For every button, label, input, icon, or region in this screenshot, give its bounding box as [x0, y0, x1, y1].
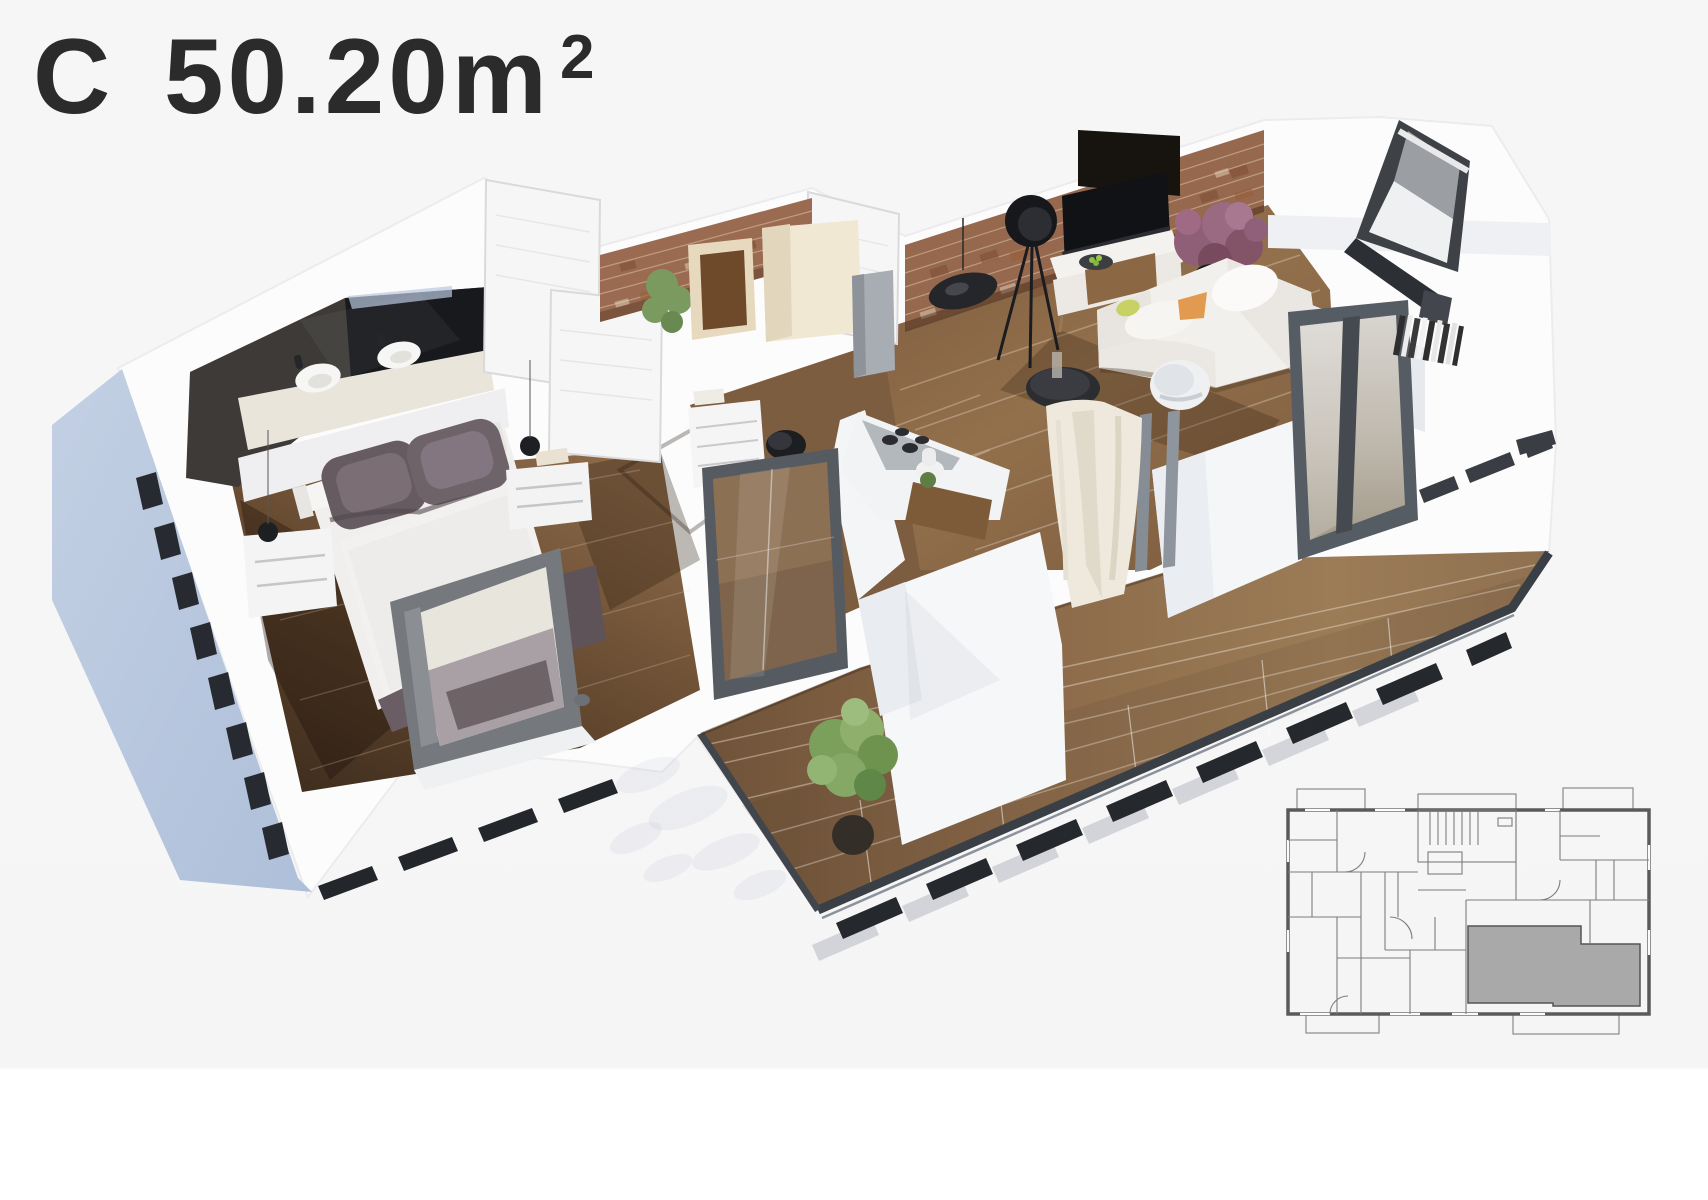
svg-text:C: C [33, 16, 110, 136]
svg-text:50.20m: 50.20m [164, 16, 551, 136]
svg-text:2: 2 [560, 23, 594, 92]
